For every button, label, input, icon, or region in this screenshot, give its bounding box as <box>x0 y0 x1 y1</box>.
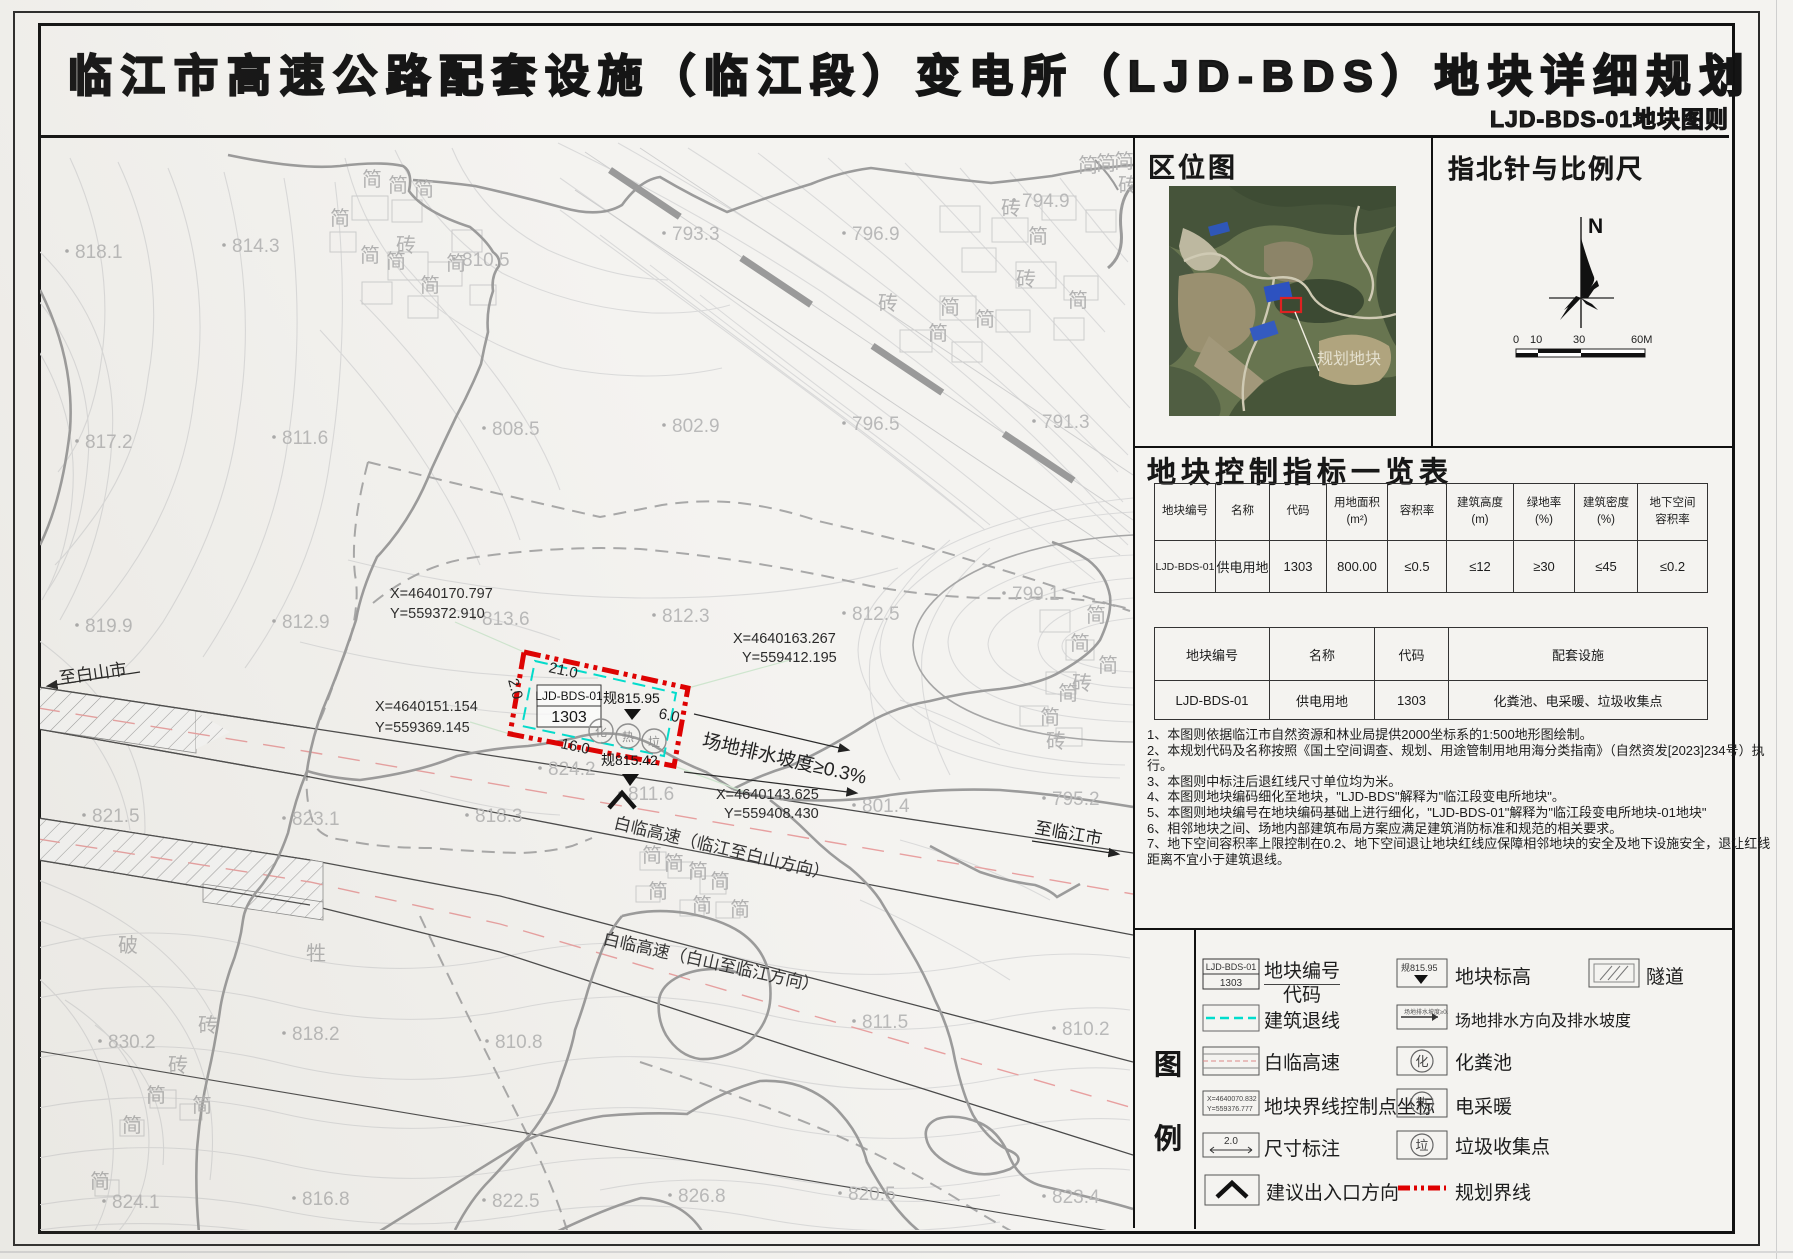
svg-text:812.9: 812.9 <box>282 612 330 633</box>
svg-text:791.3: 791.3 <box>1042 412 1090 433</box>
svg-text:简: 简 <box>386 250 406 273</box>
svg-text:Y=559376.777: Y=559376.777 <box>1207 1106 1253 1113</box>
svg-text:简: 简 <box>664 852 684 875</box>
svg-text:垃: 垃 <box>648 734 660 749</box>
svg-text:824.1: 824.1 <box>112 1192 160 1213</box>
svg-text:818.3: 818.3 <box>475 806 523 827</box>
svg-text:简: 简 <box>122 1114 142 1137</box>
svg-text:规815.42: 规815.42 <box>601 752 658 768</box>
svg-text:60M: 60M <box>1631 334 1652 346</box>
svg-text:826.8: 826.8 <box>678 1186 726 1207</box>
svg-text:811.6: 811.6 <box>282 428 328 449</box>
svg-text:802.9: 802.9 <box>672 416 720 437</box>
svg-text:砖: 砖 <box>1016 268 1036 291</box>
svg-text:Y=559412.195: Y=559412.195 <box>742 650 837 666</box>
svg-text:810.2: 810.2 <box>1062 1019 1110 1040</box>
svg-text:793.3: 793.3 <box>672 224 720 245</box>
svg-text:816.8: 816.8 <box>302 1189 350 1210</box>
svg-text:799.1: 799.1 <box>1012 584 1060 605</box>
svg-text:Y=559408.430: Y=559408.430 <box>724 806 819 822</box>
svg-text:简: 简 <box>1114 150 1133 173</box>
svg-text:简: 简 <box>446 252 466 275</box>
svg-text:X=4640170.797: X=4640170.797 <box>390 586 493 602</box>
svg-text:812.3: 812.3 <box>662 606 710 627</box>
svg-text:0: 0 <box>1513 334 1519 346</box>
svg-text:811.6: 811.6 <box>628 784 674 805</box>
svg-text:808.5: 808.5 <box>492 419 540 440</box>
svg-text:简: 简 <box>1028 225 1048 248</box>
svg-text:简: 简 <box>928 322 948 345</box>
svg-text:简: 简 <box>692 894 712 917</box>
svg-text:Y=559372.910: Y=559372.910 <box>390 606 485 622</box>
svg-text:Y=559369.145: Y=559369.145 <box>375 720 470 736</box>
svg-text:2.0: 2.0 <box>504 677 526 702</box>
svg-text:821.5: 821.5 <box>92 806 140 827</box>
svg-text:795.2: 795.2 <box>1052 789 1100 810</box>
svg-text:简: 简 <box>710 870 730 893</box>
svg-text:简: 简 <box>688 860 708 883</box>
svg-text:简: 简 <box>1098 654 1118 677</box>
svg-text:X=4640143.625: X=4640143.625 <box>716 787 819 803</box>
svg-text:简: 简 <box>146 1084 166 1107</box>
svg-text:794.9: 794.9 <box>1022 191 1070 212</box>
svg-text:简: 简 <box>388 174 408 197</box>
svg-text:热: 热 <box>622 730 634 744</box>
svg-text:规815.95: 规815.95 <box>603 690 660 706</box>
svg-text:823.4: 823.4 <box>1052 1187 1100 1208</box>
svg-text:814.3: 814.3 <box>232 236 280 257</box>
svg-text:812.5: 812.5 <box>852 604 900 625</box>
svg-text:801.4: 801.4 <box>862 796 910 817</box>
svg-text:810.5: 810.5 <box>462 250 510 271</box>
svg-text:X=4640151.154: X=4640151.154 <box>375 699 478 715</box>
svg-text:破: 破 <box>118 934 138 957</box>
svg-text:简: 简 <box>1040 706 1060 729</box>
svg-text:796.5: 796.5 <box>852 414 900 435</box>
svg-text:砖: 砖 <box>1072 672 1092 695</box>
svg-text:至白山市: 至白山市 <box>58 660 128 688</box>
svg-text:30: 30 <box>1573 334 1585 346</box>
svg-text:LJD-BDS-01: LJD-BDS-01 <box>535 689 603 703</box>
svg-text:813.6: 813.6 <box>482 609 530 630</box>
svg-text:820.5: 820.5 <box>848 1184 896 1205</box>
svg-text:砖: 砖 <box>1001 197 1021 220</box>
svg-text:X=4640070.832: X=4640070.832 <box>1207 1096 1257 1103</box>
svg-text:1303: 1303 <box>1220 978 1243 989</box>
svg-text:811.5: 811.5 <box>862 1012 908 1033</box>
svg-text:简: 简 <box>1078 154 1098 177</box>
svg-text:简: 简 <box>648 880 668 903</box>
svg-text:砖: 砖 <box>1046 730 1066 753</box>
svg-text:砖: 砖 <box>878 292 898 315</box>
svg-text:砖: 砖 <box>168 1054 188 1077</box>
svg-text:化: 化 <box>595 725 607 739</box>
svg-text:10: 10 <box>1530 334 1542 346</box>
svg-text:简: 简 <box>1086 604 1106 627</box>
svg-text:垃: 垃 <box>1415 1138 1428 1153</box>
svg-text:810.8: 810.8 <box>495 1032 543 1053</box>
svg-text:N: N <box>1588 215 1603 238</box>
svg-text:简: 简 <box>360 244 380 267</box>
svg-text:热: 热 <box>1415 1096 1428 1111</box>
svg-text:规815.95: 规815.95 <box>1401 963 1438 973</box>
svg-text:LJD-BDS-01: LJD-BDS-01 <box>1206 962 1257 972</box>
svg-text:819.9: 819.9 <box>85 616 133 637</box>
svg-text:简: 简 <box>940 296 960 319</box>
svg-text:牲: 牲 <box>306 942 326 965</box>
svg-text:简: 简 <box>730 898 750 921</box>
svg-text:简: 简 <box>1096 152 1116 175</box>
svg-text:830.2: 830.2 <box>108 1032 156 1053</box>
svg-text:简: 简 <box>1070 632 1090 655</box>
svg-text:简: 简 <box>414 178 434 201</box>
svg-text:规划地块: 规划地块 <box>1317 350 1381 368</box>
svg-text:简: 简 <box>975 308 995 331</box>
svg-text:822.5: 822.5 <box>492 1191 540 1212</box>
svg-text:简: 简 <box>362 168 382 191</box>
svg-text:2.0: 2.0 <box>1224 1136 1238 1147</box>
svg-text:简: 简 <box>1068 289 1088 312</box>
svg-text:6.0: 6.0 <box>657 705 681 726</box>
svg-text:砖: 砖 <box>1118 174 1133 197</box>
svg-text:简: 简 <box>90 1170 110 1193</box>
svg-text:砖: 砖 <box>198 1014 218 1037</box>
svg-text:824.2: 824.2 <box>548 759 596 780</box>
svg-text:1303: 1303 <box>551 709 587 726</box>
svg-text:简: 简 <box>330 207 350 230</box>
svg-text:简: 简 <box>420 274 440 297</box>
svg-text:823.1: 823.1 <box>292 809 340 830</box>
svg-text:817.2: 817.2 <box>85 432 133 453</box>
svg-text:化: 化 <box>1415 1054 1428 1069</box>
svg-text:场地排水坡度≥0.3%: 场地排水坡度≥0.3% <box>1404 1008 1448 1016</box>
svg-text:X=4640163.267: X=4640163.267 <box>733 631 836 647</box>
svg-text:简: 简 <box>642 844 662 867</box>
svg-text:818.1: 818.1 <box>75 242 123 263</box>
svg-text:796.9: 796.9 <box>852 224 900 245</box>
svg-text:818.2: 818.2 <box>292 1024 340 1045</box>
svg-text:至临江市: 至临江市 <box>1033 818 1103 849</box>
svg-text:简: 简 <box>192 1094 212 1117</box>
